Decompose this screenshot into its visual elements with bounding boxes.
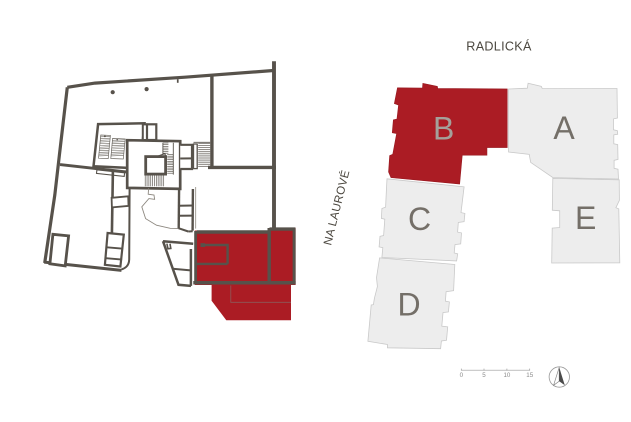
svg-text:D: D [397,287,420,323]
svg-text:15: 15 [526,372,533,379]
svg-text:E: E [575,200,596,236]
svg-text:5: 5 [482,372,486,379]
svg-text:0: 0 [460,372,464,379]
svg-text:B: B [433,110,454,146]
svg-text:RADLICKÁ: RADLICKÁ [466,39,532,54]
svg-text:A: A [553,110,575,146]
svg-text:C: C [408,201,431,237]
svg-text:10: 10 [503,372,510,379]
